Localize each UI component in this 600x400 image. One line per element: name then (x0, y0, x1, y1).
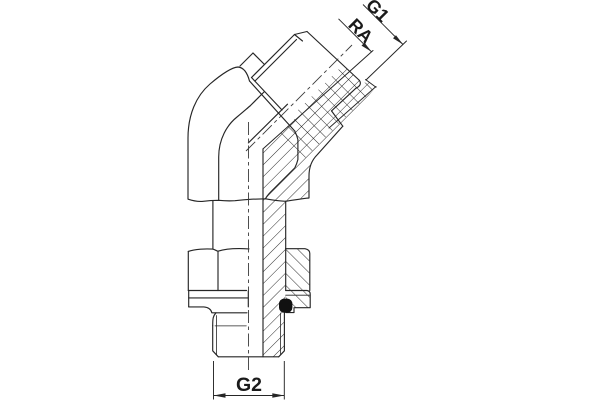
svg-text:RA: RA (344, 15, 377, 48)
svg-text:G2: G2 (236, 374, 262, 396)
